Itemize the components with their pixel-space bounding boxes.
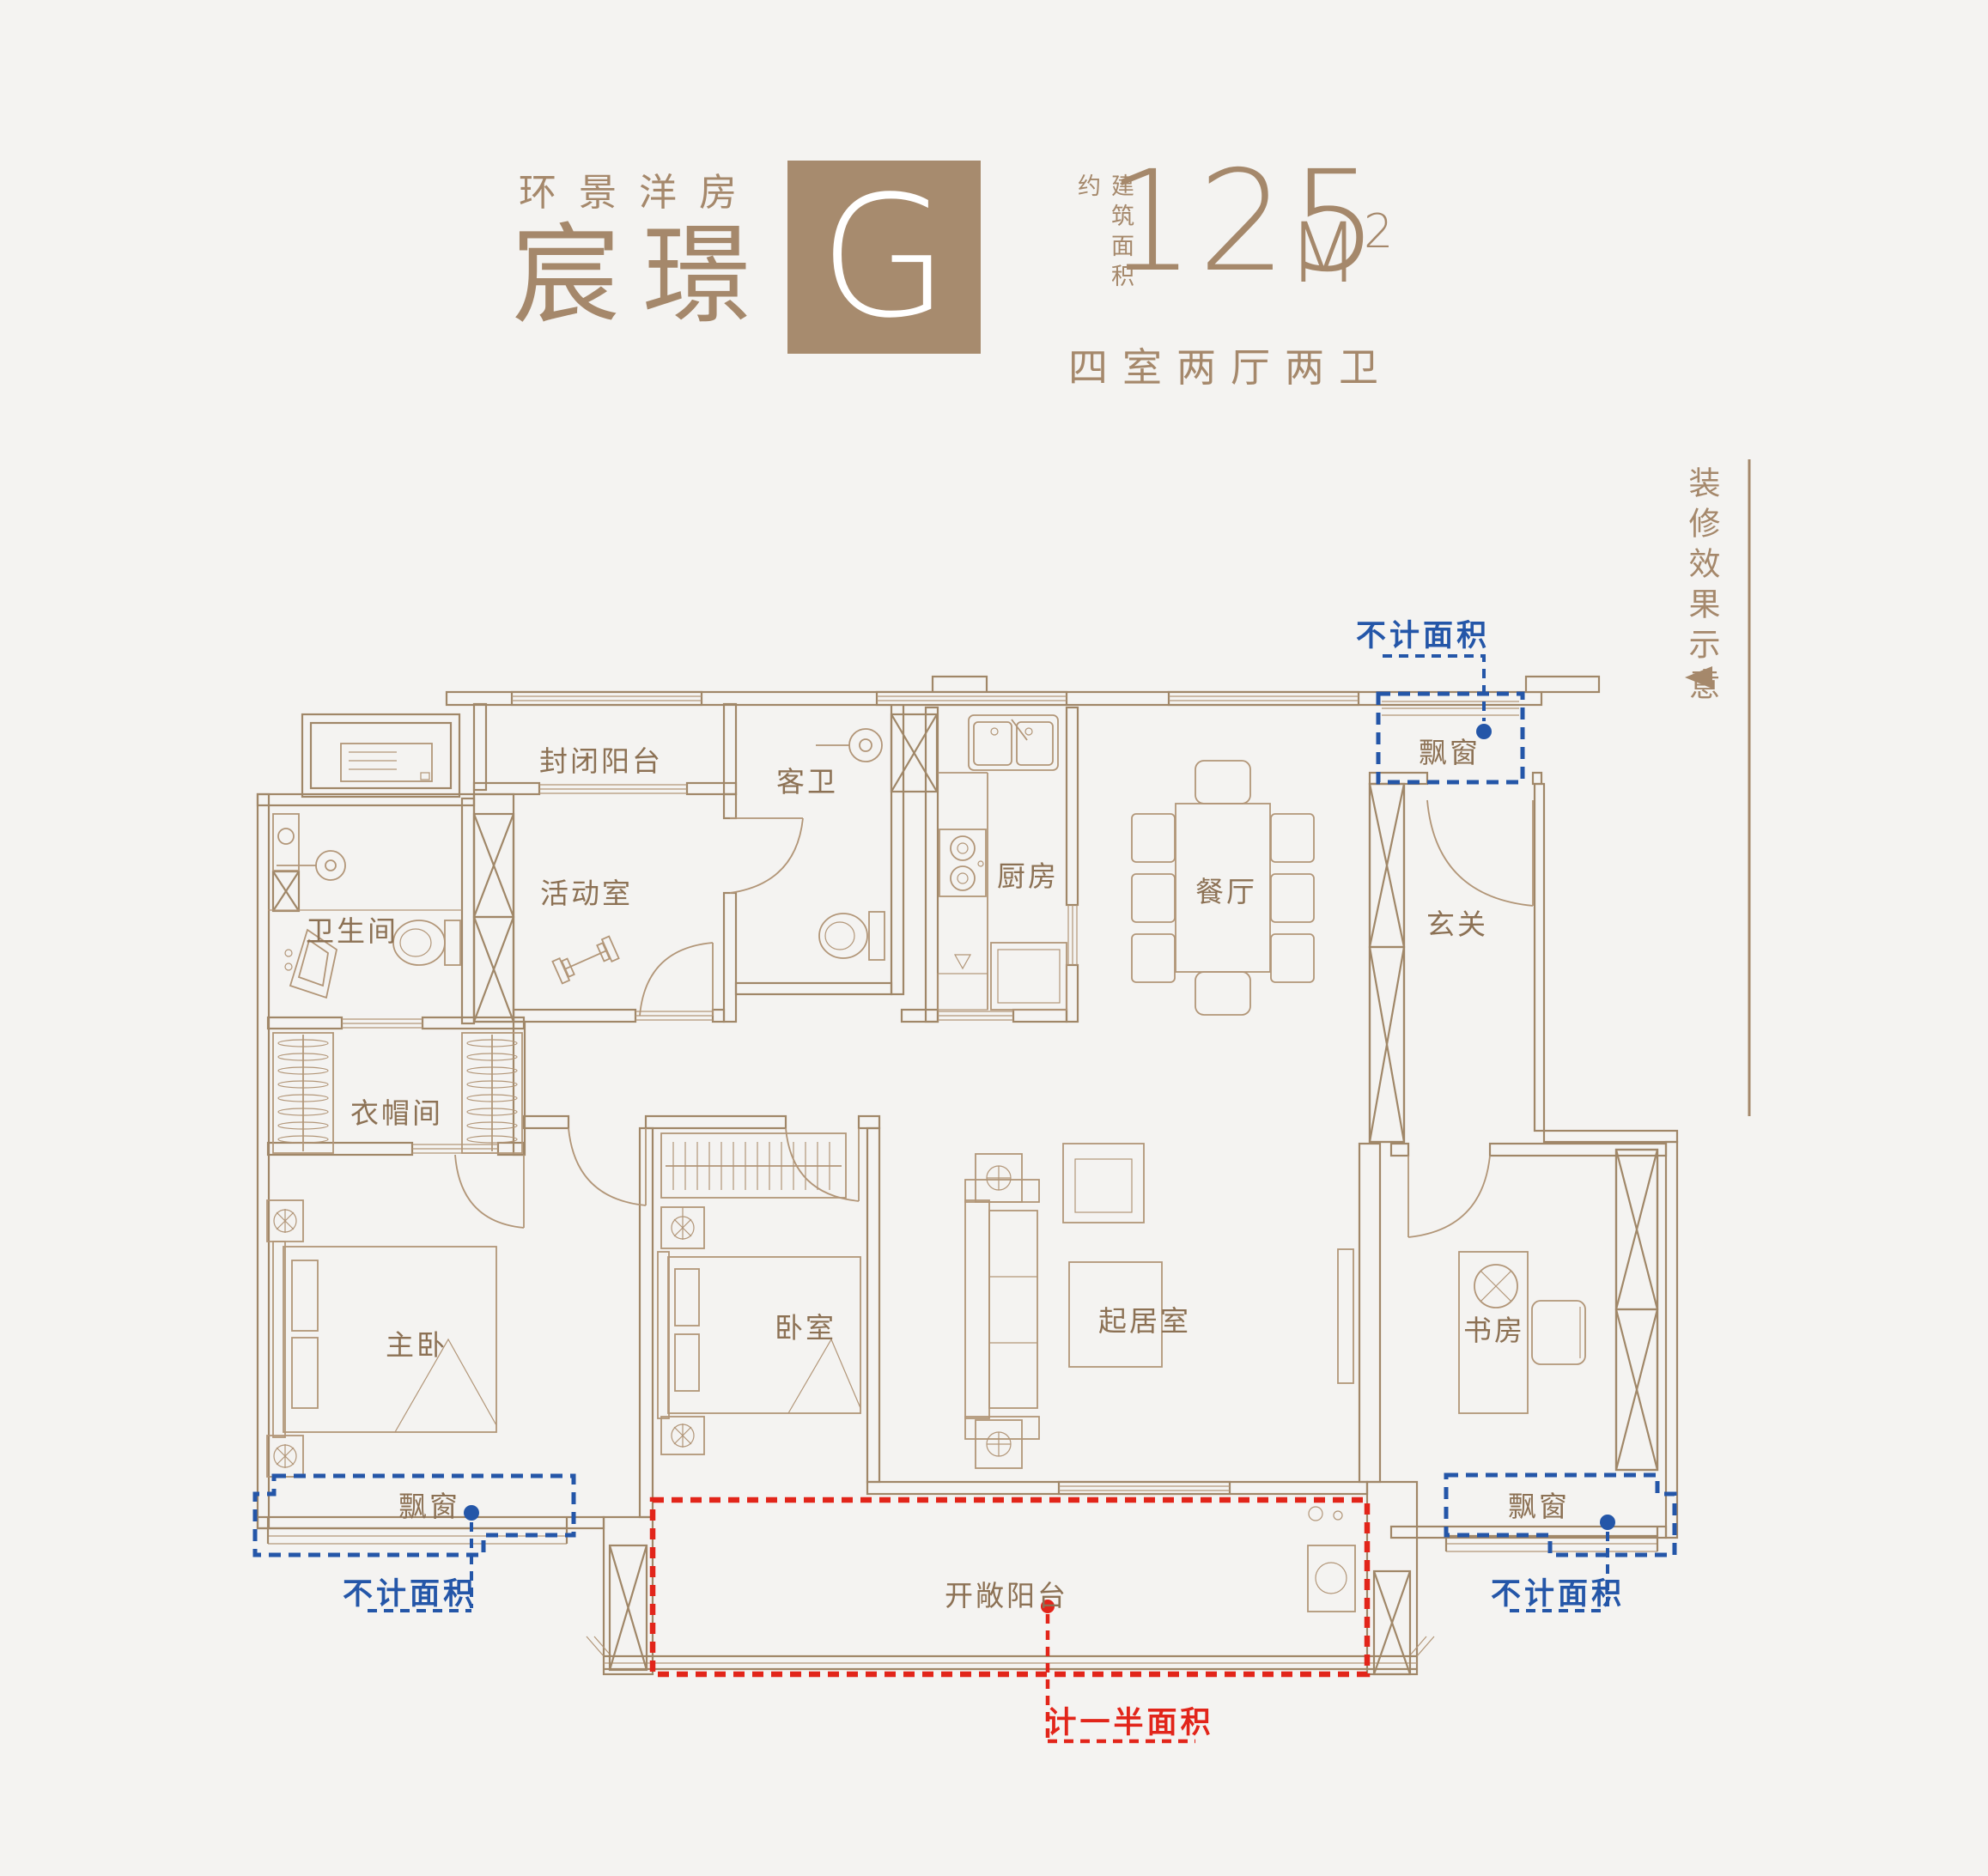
entry-door — [1427, 800, 1533, 906]
plant-icon — [672, 1424, 694, 1448]
label-dining: 餐厅 — [1195, 875, 1257, 908]
label-study: 书房 — [1463, 1314, 1525, 1347]
guest-bath-door — [730, 818, 803, 893]
bathroom-counter-icon — [273, 814, 299, 871]
master-bed-icon — [267, 1200, 496, 1477]
label-excluded-area-right: 不计面积 — [1491, 1577, 1625, 1612]
label-bathroom: 卫生间 — [306, 914, 398, 948]
opening-sills — [342, 785, 1077, 1153]
area-exponent: 2 — [1364, 209, 1393, 255]
side-table-lamp-icon — [976, 1154, 1022, 1202]
kitchen-sink-icon — [969, 715, 1058, 770]
guest-toilet-icon — [819, 912, 885, 960]
shower-icon — [277, 851, 345, 880]
chair-icon — [1532, 1301, 1585, 1364]
label-cloakroom: 衣帽间 — [350, 1096, 443, 1130]
drain-icon — [938, 955, 988, 1010]
label-bay-window-right: 飘窗 — [1508, 1490, 1570, 1523]
label-guest-bath: 客卫 — [776, 765, 838, 798]
side-table-lamp-icon — [976, 1420, 1022, 1468]
label-bedroom: 卧室 — [775, 1311, 836, 1345]
stove-icon — [939, 829, 986, 896]
window-living-sliding — [1059, 1482, 1230, 1494]
label-foyer: 玄关 — [1426, 908, 1488, 941]
sofa-icon — [965, 1180, 1039, 1439]
toilet-icon — [393, 920, 460, 965]
label-kitchen: 厨房 — [997, 859, 1059, 893]
series-title: 环景洋房 — [519, 161, 759, 216]
balcony-railing — [587, 1636, 1434, 1669]
globe-icon — [1474, 1265, 1517, 1308]
hanger-rack-icon — [273, 1033, 333, 1153]
label-living: 起居室 — [1098, 1304, 1191, 1338]
label-open-balcony: 开敞阳台 — [945, 1579, 1068, 1612]
window-north-balcony — [512, 692, 702, 705]
label-enclosed-balcony: 封闭阳台 — [539, 744, 663, 778]
cloakroom-door — [455, 1155, 524, 1228]
label-bay-window-top: 飘窗 — [1419, 736, 1480, 769]
open-balcony-annotation — [653, 1500, 1367, 1741]
label-bay-window-left: 飘窗 — [398, 1490, 460, 1523]
unit-name: 宸璟 — [512, 222, 773, 330]
armchair-icon — [1063, 1144, 1144, 1223]
label-master-bedroom: 主卧 — [386, 1328, 447, 1362]
washer-icon — [1308, 1507, 1355, 1612]
label-half-area: 计一半面积 — [1046, 1706, 1213, 1740]
unit-letter-badge: G — [787, 161, 981, 354]
unit-letter: G — [819, 173, 949, 341]
window-north-kitchen — [877, 692, 1067, 705]
doors — [455, 800, 1533, 1237]
study-door — [1408, 1156, 1490, 1237]
label-excluded-area-left: 不计面积 — [343, 1577, 477, 1612]
decoration-caption: 装修效果示意 — [1678, 466, 1724, 708]
blue-dot — [464, 1505, 479, 1521]
windows — [268, 692, 1657, 1669]
activity-door — [640, 943, 713, 1016]
guest-shower-icon — [816, 729, 882, 762]
area-unit: M — [1288, 212, 1359, 294]
plant-icon — [274, 1444, 296, 1468]
label-excluded-area-top: 不计面积 — [1356, 619, 1490, 653]
floorplan-page: { "header": { "series": "环景洋房", "unit_na… — [0, 0, 1988, 1876]
bedroom-door — [786, 1128, 859, 1201]
master-door — [568, 1128, 646, 1205]
dumbbell-icon — [552, 937, 618, 984]
fridge-icon — [991, 943, 1067, 1010]
layout-description: 四室两厅两卫 — [1068, 337, 1393, 393]
label-activity: 活动室 — [540, 877, 633, 910]
blue-dot — [1600, 1515, 1615, 1530]
tv-console — [1338, 1249, 1353, 1383]
floorplan-canvas: 封闭阳台 客卫 厨房 餐厅 玄关 卫生间 活动室 衣帽间 主卧 卧室 起居室 书… — [0, 0, 1988, 1876]
plant-icon — [274, 1209, 296, 1233]
window-north-dining — [1169, 692, 1359, 705]
plant-icon — [672, 1207, 694, 1240]
